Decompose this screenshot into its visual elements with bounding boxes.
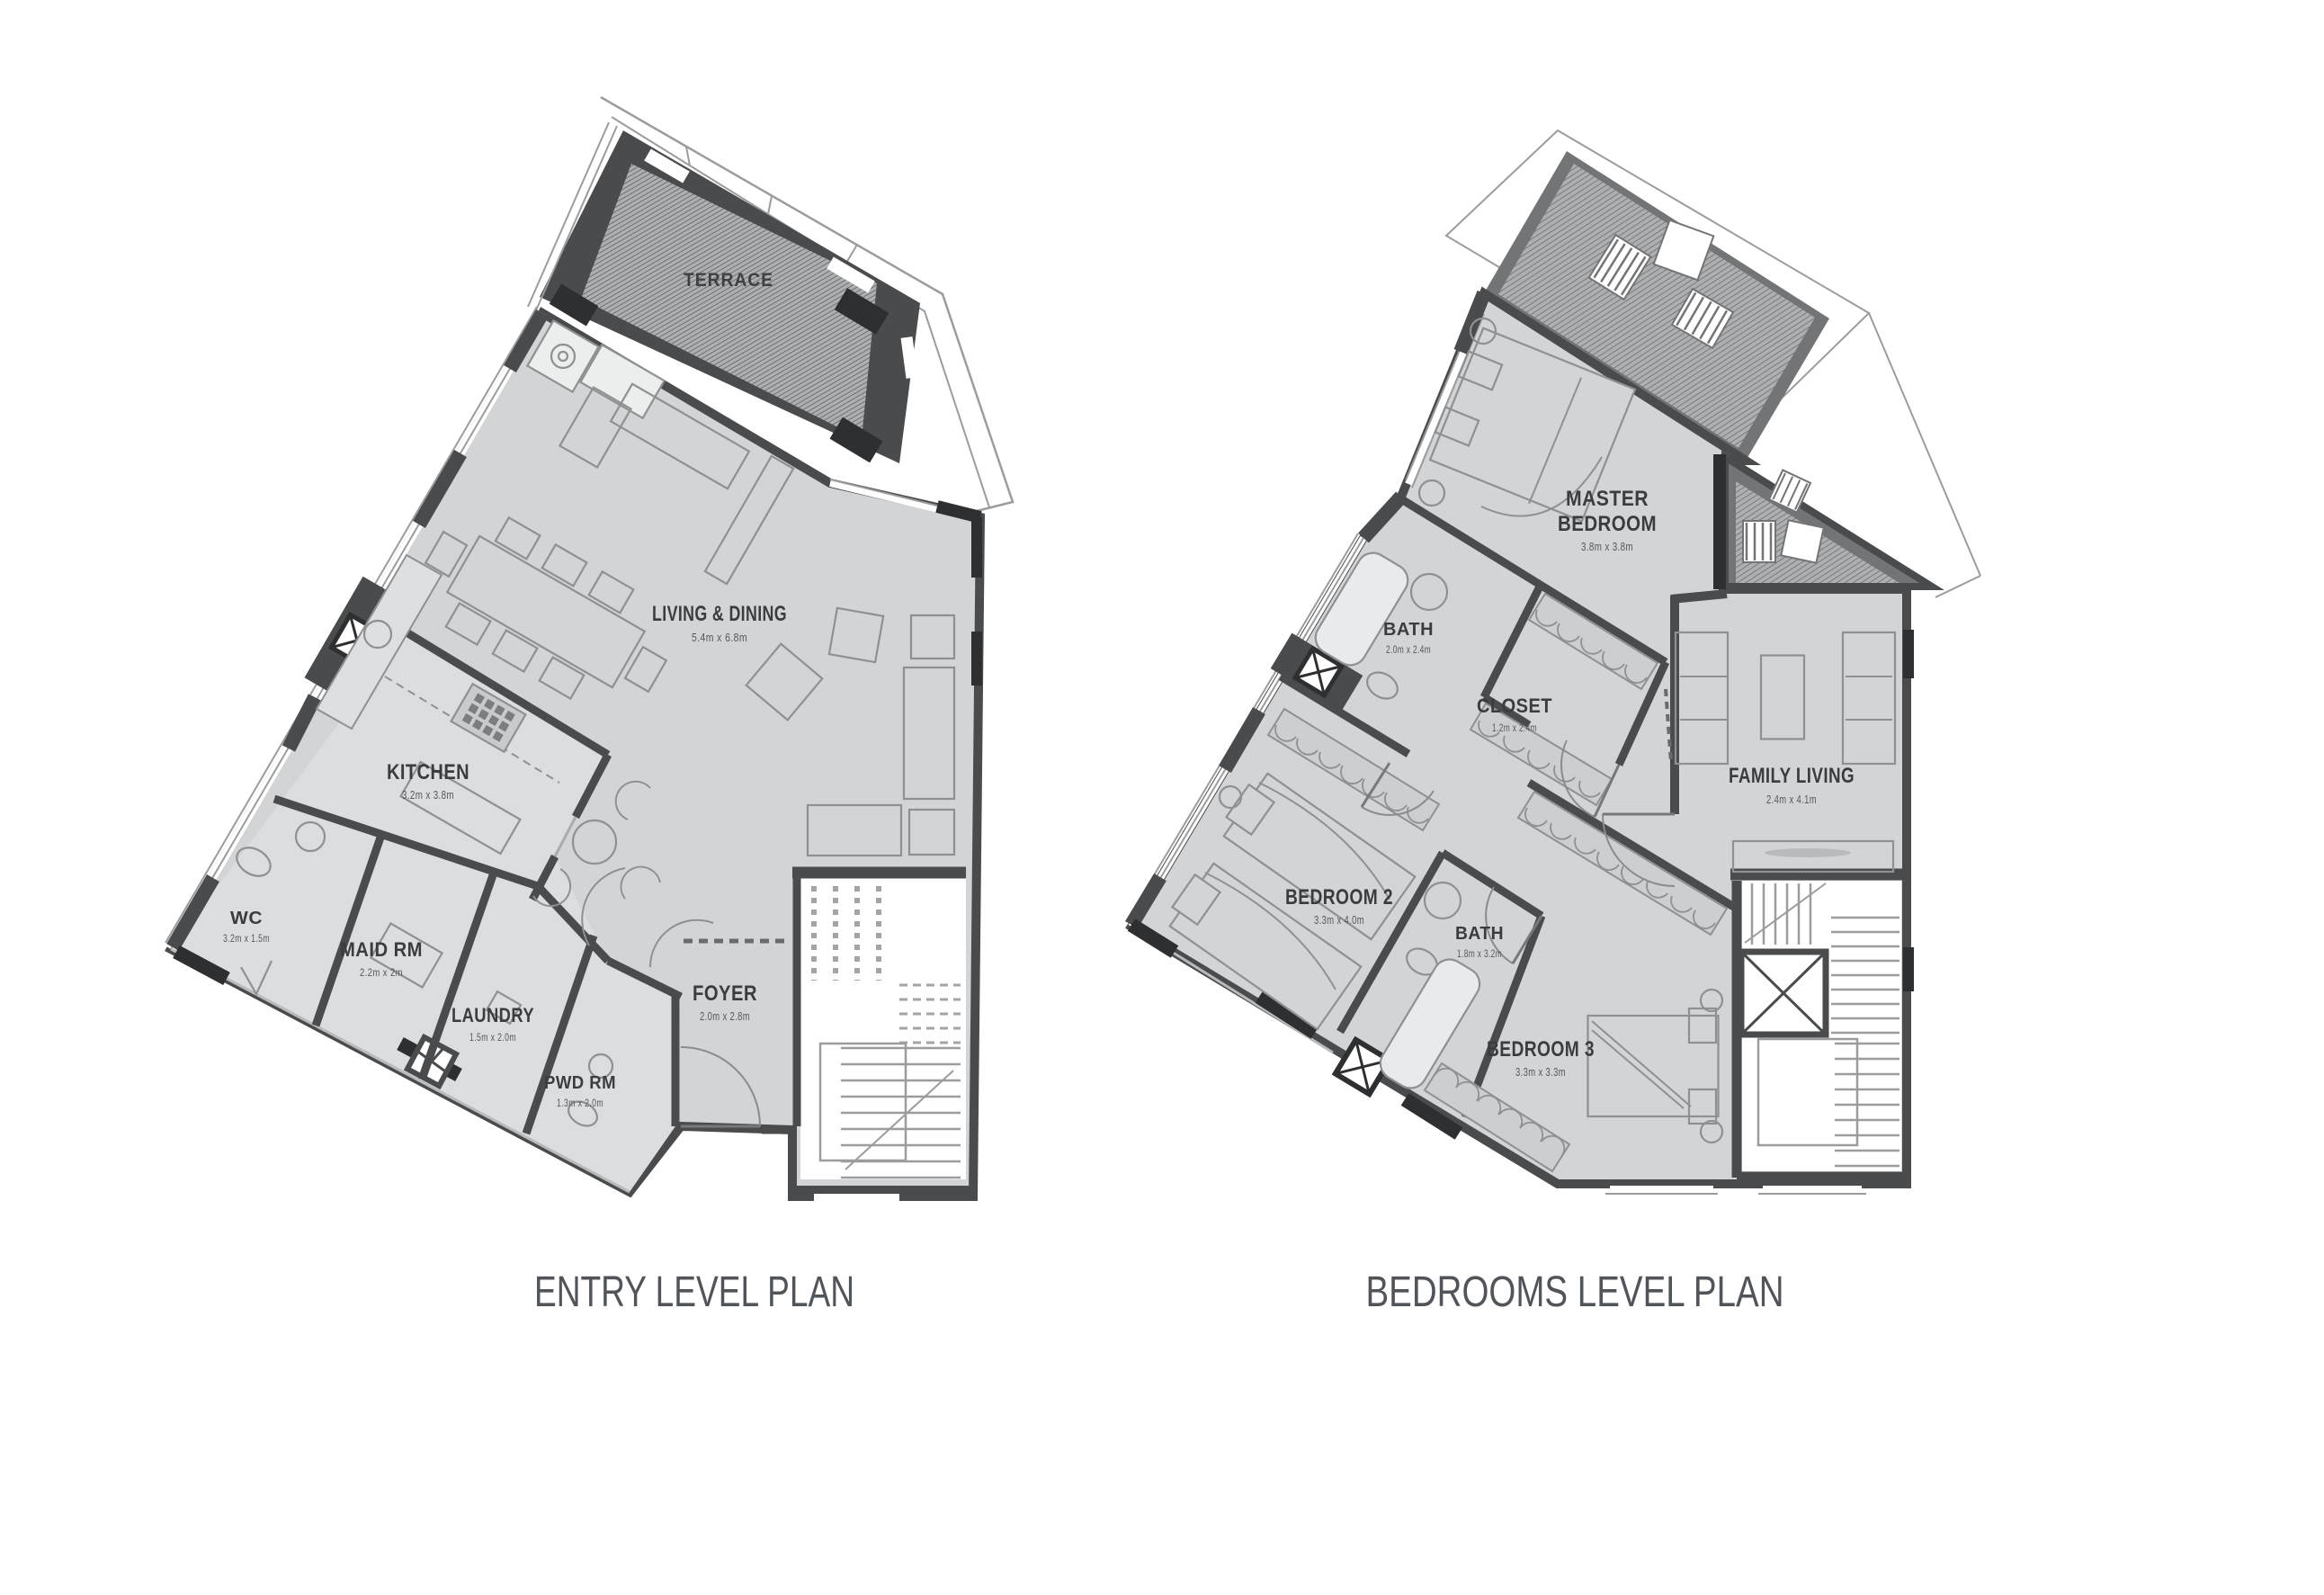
svg-text:2.2m x 2m: 2.2m x 2m: [360, 966, 403, 979]
svg-text:BATH: BATH: [1455, 924, 1504, 944]
svg-text:BEDROOM: BEDROOM: [1558, 512, 1657, 536]
svg-text:2.0m x 2.4m: 2.0m x 2.4m: [1386, 643, 1431, 656]
svg-text:3.2m x 1.5m: 3.2m x 1.5m: [223, 932, 270, 945]
svg-text:1.3m x 2.0m: 1.3m x 2.0m: [557, 1097, 603, 1109]
svg-text:5.4m x 6.8m: 5.4m x 6.8m: [692, 631, 747, 644]
svg-text:MAID RM: MAID RM: [340, 938, 423, 961]
svg-text:1.5m x 2.0m: 1.5m x 2.0m: [469, 1031, 516, 1044]
svg-text:LAUNDRY: LAUNDRY: [451, 1004, 534, 1026]
svg-text:PWD RM: PWD RM: [544, 1073, 616, 1093]
svg-text:ENTRY LEVEL PLAN: ENTRY LEVEL PLAN: [534, 1268, 854, 1316]
svg-text:LIVING & DINING: LIVING & DINING: [652, 602, 787, 626]
svg-text:KITCHEN: KITCHEN: [387, 760, 469, 784]
svg-text:TERRACE: TERRACE: [684, 270, 773, 291]
svg-text:BATH: BATH: [1383, 620, 1434, 640]
svg-text:FOYER: FOYER: [693, 981, 757, 1006]
svg-text:2.0m x 2.8m: 2.0m x 2.8m: [700, 1009, 750, 1023]
svg-text:3.2m x 3.8m: 3.2m x 3.8m: [402, 788, 454, 802]
svg-text:1.8m x 3.2m: 1.8m x 3.2m: [1457, 947, 1502, 960]
svg-text:2.4m x 4.1m: 2.4m x 4.1m: [1766, 793, 1817, 806]
svg-text:1.2m x 2.4m: 1.2m x 2.4m: [1492, 721, 1537, 734]
svg-text:3.3m x 3.3m: 3.3m x 3.3m: [1515, 1065, 1566, 1079]
svg-text:BEDROOMS LEVEL PLAN: BEDROOMS LEVEL PLAN: [1366, 1268, 1784, 1316]
svg-text:FAMILY LIVING: FAMILY LIVING: [1729, 764, 1855, 788]
svg-text:CLOSET: CLOSET: [1477, 694, 1552, 717]
svg-text:BEDROOM 2: BEDROOM 2: [1285, 885, 1393, 910]
svg-text:3.8m x 3.8m: 3.8m x 3.8m: [1581, 540, 1633, 553]
svg-text:3.3m x 4.0m: 3.3m x 4.0m: [1314, 913, 1364, 927]
svg-text:WC: WC: [230, 909, 263, 928]
svg-text:BEDROOM 3: BEDROOM 3: [1487, 1037, 1595, 1062]
svg-text:MASTER: MASTER: [1566, 487, 1649, 511]
